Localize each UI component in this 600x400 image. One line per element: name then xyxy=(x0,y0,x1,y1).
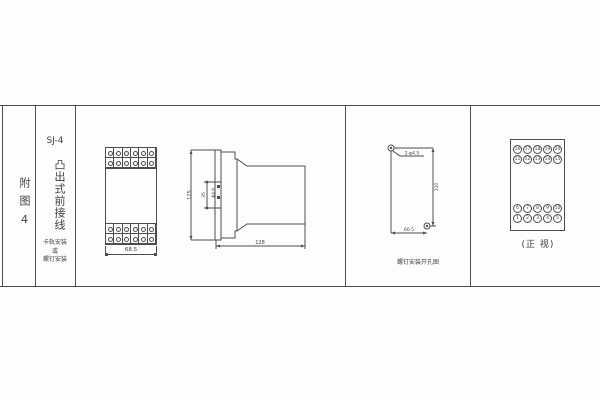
terminal-2: 2 xyxy=(523,214,532,223)
arrowhead xyxy=(190,150,193,154)
relay-model-label: SJ-4 xyxy=(36,136,74,146)
screw-head-icon xyxy=(124,227,129,232)
mount-note-line-3: 螺钉安装 xyxy=(36,256,74,263)
screw-head-icon xyxy=(116,161,121,166)
horizontal-dim-label: 60.5 xyxy=(404,227,414,233)
screw-head-icon xyxy=(108,161,113,166)
screw-head-icon xyxy=(108,237,113,242)
width-dimension-label: 68.5 xyxy=(105,247,157,253)
relay-body-outline xyxy=(221,152,305,238)
terminal-4: 4 xyxy=(543,214,552,223)
screw-head-icon xyxy=(141,227,146,232)
wiring-type-label: 凸出式前接线 xyxy=(45,154,67,236)
terminal-screw-cell xyxy=(148,234,156,244)
terminal-row: 1112131415 xyxy=(511,155,564,164)
screw-head-icon xyxy=(141,161,146,166)
terminal-screw-cell xyxy=(139,158,147,168)
arrowhead xyxy=(432,148,435,152)
terminal-1: 1 xyxy=(513,214,522,223)
table-border-bottom xyxy=(0,286,600,287)
terminal-3: 3 xyxy=(533,214,542,223)
terminal-screw-cell xyxy=(114,234,122,244)
terminal-row: 678910 xyxy=(511,204,564,213)
front-view-drawing xyxy=(105,147,157,245)
terminal-screw-cell xyxy=(106,148,114,158)
lower-terminal-rows: 67891012345 xyxy=(511,204,564,224)
terminal-screw-cell xyxy=(123,158,131,168)
screw-head-icon xyxy=(124,151,129,156)
screw-head-icon xyxy=(116,237,121,242)
terminal-screw-cell xyxy=(148,148,156,158)
column-divider-2 xyxy=(75,105,76,287)
terminal-13: 13 xyxy=(533,155,542,164)
dimension-line xyxy=(105,254,157,255)
screw-head-icon xyxy=(141,151,146,156)
arrowhead xyxy=(301,245,305,248)
top-terminal-screw-grid xyxy=(106,148,156,169)
terminal-screw-cell xyxy=(123,148,131,158)
screw-head-icon xyxy=(116,227,121,232)
terminal-screw-cell xyxy=(114,224,122,234)
hole-center-dot xyxy=(390,147,392,149)
terminal-10: 10 xyxy=(553,204,562,213)
drill-hole-diagram: 2-φ4.5 110 60.5 xyxy=(378,140,468,240)
screw-head-icon xyxy=(116,151,121,156)
depth-dim-label: 128 xyxy=(255,240,265,246)
screw-head-icon xyxy=(133,151,138,156)
mount-note-line-2: 或 xyxy=(36,248,74,255)
screw-head-icon xyxy=(149,161,154,166)
terminal-5: 5 xyxy=(553,214,562,223)
terminal-screw-cell xyxy=(131,148,139,158)
screw-head-icon xyxy=(149,151,154,156)
terminal-screw-cell xyxy=(123,224,131,234)
column-divider-4 xyxy=(470,105,471,287)
terminal-screw-cell xyxy=(148,158,156,168)
screw-head-icon xyxy=(141,237,146,242)
terminal-screw-cell xyxy=(139,224,147,234)
terminal-6: 6 xyxy=(513,204,522,213)
mount-note-line-1: 卡轨安装 xyxy=(36,239,74,246)
terminal-19: 19 xyxy=(543,145,552,154)
column-divider-3 xyxy=(345,105,346,287)
table-border-top xyxy=(0,105,600,106)
terminal-17: 17 xyxy=(523,145,532,154)
hole-diameter-label: Φ4.8 xyxy=(211,188,216,198)
drill-diagram-caption: 螺钉安装开孔图 xyxy=(374,257,462,266)
screw-head-icon xyxy=(124,161,129,166)
screw-head-icon xyxy=(149,237,154,242)
hole-center-dot xyxy=(426,225,428,227)
side-view-drawing: 125 35 Φ4.8 128 xyxy=(183,140,313,255)
figure-number-label: 附图4 xyxy=(6,172,32,238)
terminal-diagram-caption: (正 视) xyxy=(500,237,576,250)
terminal-8: 8 xyxy=(533,204,542,213)
table-border-left xyxy=(2,105,3,287)
terminal-diagram: 16171819201112131415 67891012345 xyxy=(510,139,565,231)
arrowhead xyxy=(432,222,435,226)
terminal-11: 11 xyxy=(513,155,522,164)
terminal-screw-cell xyxy=(106,158,114,168)
arrowhead xyxy=(190,236,193,240)
terminal-12: 12 xyxy=(523,155,532,164)
terminal-7: 7 xyxy=(523,204,532,213)
flange-screw xyxy=(217,196,220,199)
arrowhead xyxy=(216,245,220,248)
dim-end-marker xyxy=(206,181,208,183)
terminal-screw-cell xyxy=(123,234,131,244)
dimension-end-marker xyxy=(105,253,108,256)
upper-terminal-rows: 16171819201112131415 xyxy=(511,145,564,165)
screw-head-icon xyxy=(133,237,138,242)
screw-head-icon xyxy=(108,227,113,232)
terminal-9: 9 xyxy=(543,204,552,213)
screw-head-icon xyxy=(133,161,138,166)
height-dim-label: 125 xyxy=(187,190,193,200)
width-dimension: 68.5 xyxy=(105,250,157,259)
arrowhead xyxy=(391,232,395,235)
terminal-screw-cell xyxy=(131,158,139,168)
terminal-20: 20 xyxy=(553,145,562,154)
terminal-screw-cell xyxy=(106,234,114,244)
terminal-16: 16 xyxy=(513,145,522,154)
dimension-end-marker xyxy=(154,253,157,256)
terminal-18: 18 xyxy=(533,145,542,154)
terminal-screw-cell xyxy=(131,224,139,234)
terminal-screw-cell xyxy=(114,158,122,168)
terminal-screw-cell xyxy=(139,148,147,158)
dim-end-marker xyxy=(206,207,208,209)
bottom-terminal-screw-grid xyxy=(106,223,156,244)
flange-screw xyxy=(217,185,220,188)
screw-head-icon xyxy=(108,151,113,156)
screw-head-icon xyxy=(124,237,129,242)
terminal-row: 1617181920 xyxy=(511,145,564,154)
terminal-screw-cell xyxy=(131,234,139,244)
terminal-screw-cell xyxy=(148,224,156,234)
holes-count-label: 2-φ4.5 xyxy=(405,151,420,157)
terminal-screw-cell xyxy=(114,148,122,158)
screw-head-icon xyxy=(149,227,154,232)
terminal-15: 15 xyxy=(553,155,562,164)
vertical-dim-label: 110 xyxy=(434,183,440,192)
hole-spacing-label: 35 xyxy=(201,192,207,198)
drawing-sheet: 附图4 SJ-4 凸出式前接线 卡轨安装 或 螺钉安装 68.5 xyxy=(0,0,600,400)
screw-head-icon xyxy=(133,227,138,232)
terminal-screw-cell xyxy=(139,234,147,244)
terminal-row: 12345 xyxy=(511,214,564,223)
terminal-screw-cell xyxy=(106,224,114,234)
arrowhead xyxy=(423,232,427,235)
terminal-14: 14 xyxy=(543,155,552,164)
